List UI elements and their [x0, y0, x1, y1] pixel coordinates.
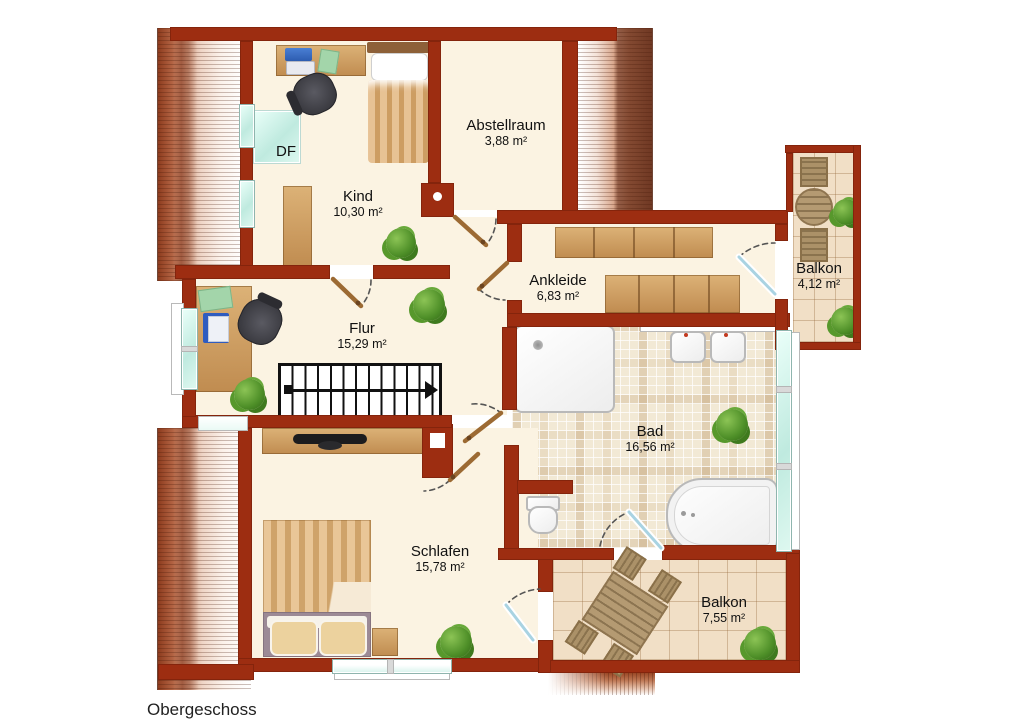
skylight-text: DF — [276, 143, 296, 160]
door-ankleide — [479, 263, 507, 300]
room-name: Bad — [625, 423, 674, 440]
page-title: Obergeschoss — [147, 700, 257, 720]
room-label-kind: Kind 10,30 m² — [333, 188, 382, 220]
room-label-abstellraum: Abstellraum 3,88 m² — [466, 117, 545, 149]
room-label-balkon-top: Balkon 4,12 m² — [796, 260, 842, 292]
door-kind — [333, 279, 371, 306]
room-label-bad: Bad 16,56 m² — [625, 423, 674, 455]
room-name: Balkon — [796, 260, 842, 277]
glass-door-bad-balkon — [600, 512, 661, 548]
skylight-label: DF — [276, 143, 296, 160]
room-name: Kind — [333, 188, 382, 205]
door-schlafen — [424, 454, 478, 491]
room-label-ankleide: Ankleide 6,83 m² — [529, 272, 587, 304]
door-bad — [465, 404, 501, 441]
room-name: Schlafen — [411, 543, 469, 560]
room-name: Ankleide — [529, 272, 587, 289]
room-area: 10,30 m² — [333, 205, 382, 220]
room-label-flur: Flur 15,29 m² — [337, 320, 386, 352]
room-name: Flur — [337, 320, 386, 337]
doors-overlay — [0, 0, 1024, 724]
door-abstellraum — [455, 217, 496, 245]
room-area: 4,12 m² — [796, 277, 842, 292]
room-area: 15,78 m² — [411, 560, 469, 575]
room-area: 3,88 m² — [466, 134, 545, 149]
room-area: 7,55 m² — [701, 611, 747, 626]
glass-door-schlafen-balkon — [506, 589, 540, 640]
room-label-schlafen: Schlafen 15,78 m² — [411, 543, 469, 575]
room-label-balkon-bottom: Balkon 7,55 m² — [701, 594, 747, 626]
room-name: Balkon — [701, 594, 747, 611]
room-name: Abstellraum — [466, 117, 545, 134]
room-area: 16,56 m² — [625, 440, 674, 455]
room-area: 15,29 m² — [337, 337, 386, 352]
room-area: 6,83 m² — [529, 289, 587, 304]
floor-plan: Kind 10,30 m² Abstellraum 3,88 m² Anklei… — [0, 0, 1024, 724]
glass-door-ankleide-balkon — [739, 243, 775, 294]
